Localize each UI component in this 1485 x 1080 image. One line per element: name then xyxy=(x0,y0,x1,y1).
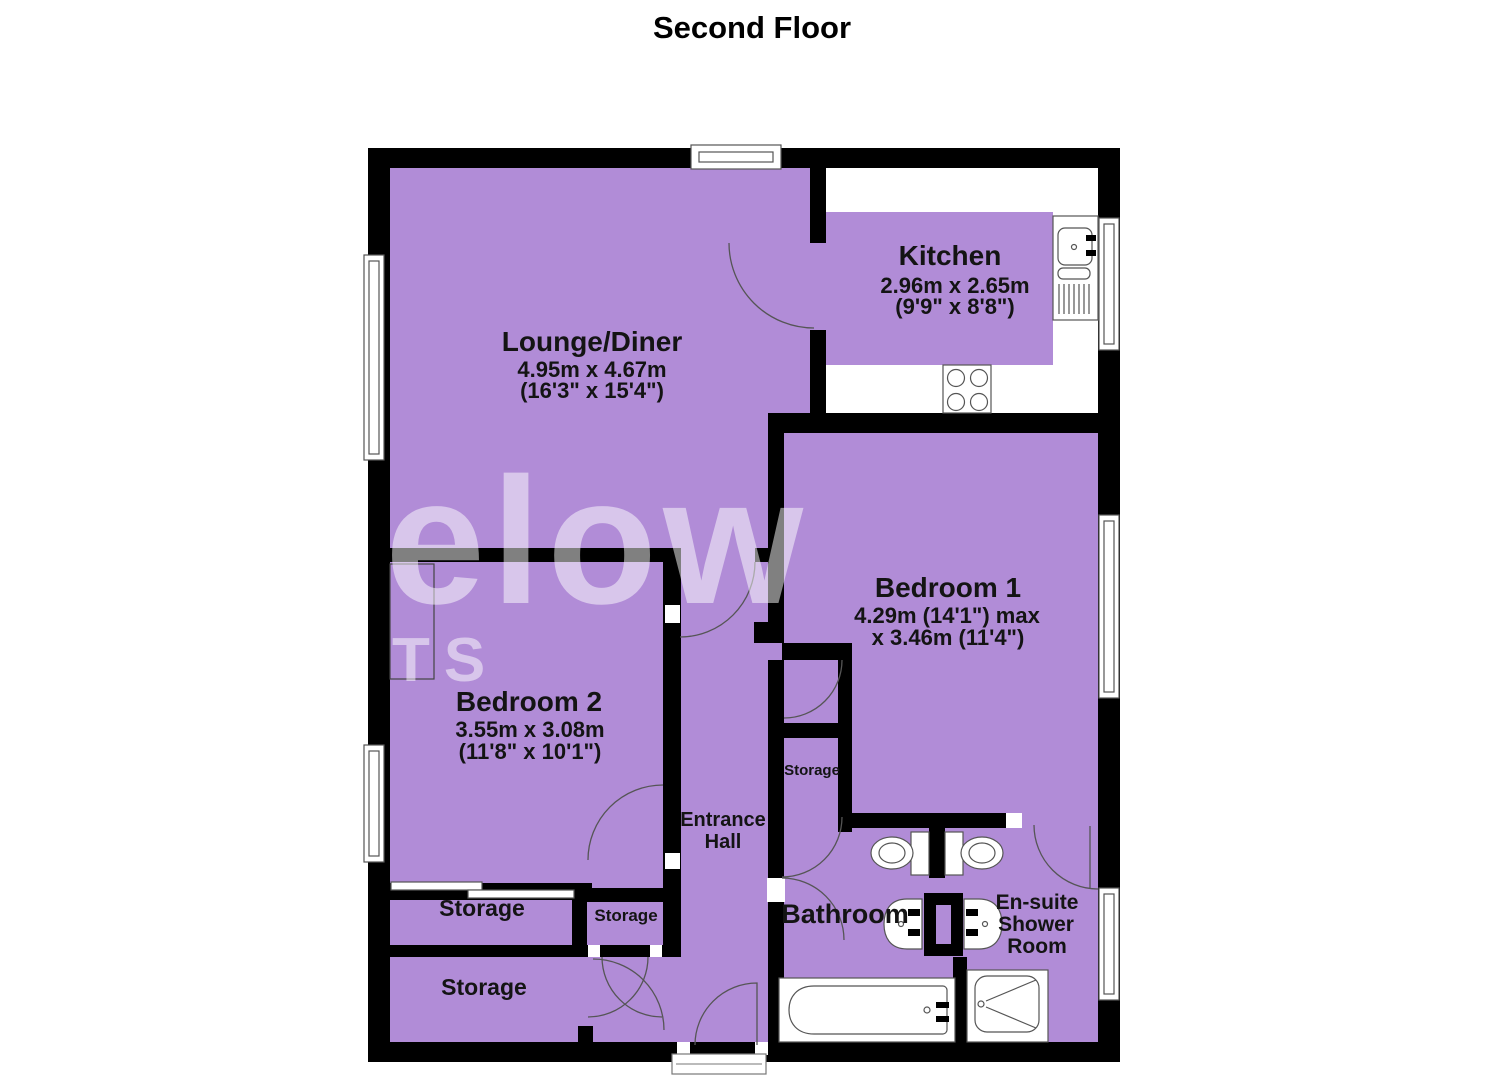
window-ensuite-right xyxy=(1099,888,1119,1000)
storage-hall-name: Storage xyxy=(784,763,840,778)
wall-storages-bottom-c xyxy=(662,945,681,957)
kitchen-sink-unit xyxy=(1053,216,1098,320)
wall-basin-box-inner xyxy=(936,905,951,944)
window-bedroom2-left xyxy=(364,745,384,862)
storage-small-name: Storage xyxy=(594,907,657,924)
wall-kitchen-bottom xyxy=(768,413,1098,433)
wall-bathroom-top xyxy=(852,813,1006,828)
wall-nub-bedroom1-door xyxy=(754,622,784,643)
lounge-dims-imperial: (16'3" x 15'4") xyxy=(520,380,664,402)
window-bedroom1-right xyxy=(1099,515,1119,698)
wall-toilet-divider xyxy=(929,828,945,878)
wall-bedroom1-lower-left xyxy=(782,643,852,660)
kitchen-hob xyxy=(943,365,991,413)
wall-kitchen-divider-lower xyxy=(810,330,826,413)
shower-tray xyxy=(967,970,1048,1042)
ensuite-name-line1: En-suite xyxy=(996,892,1079,913)
kitchen-name: Kitchen xyxy=(899,242,1002,270)
wall-storage-hall-right xyxy=(838,660,852,832)
window-kitchen-right xyxy=(1099,218,1119,350)
marker-bedroom2-door xyxy=(665,853,680,869)
storage-bottom-name: Storage xyxy=(441,976,527,999)
wall-storages-bottom-a xyxy=(368,945,588,957)
wall-kitchen-divider-upper xyxy=(810,168,826,243)
bedroom2-sliding-door-1 xyxy=(391,882,482,890)
lounge-name: Lounge/Diner xyxy=(502,328,682,356)
storage-mid-name: Storage xyxy=(439,897,525,920)
ensuite-name-line3: Room xyxy=(1007,936,1067,957)
bathroom-name: Bathroom xyxy=(781,901,909,928)
marker-storage-small-left xyxy=(588,945,600,957)
window-lounge-left xyxy=(364,255,384,460)
bedroom2-dims-imperial: (11'8" x 10'1") xyxy=(459,741,602,763)
marker-ensuite-door xyxy=(1006,813,1022,828)
wall-lounge-bottom xyxy=(385,548,681,562)
marker-hall-left-upper xyxy=(665,605,680,623)
wall-lounge-stub xyxy=(755,548,769,562)
ensuite-name-line2: Shower xyxy=(998,914,1074,935)
floorplan-page: elow TS Second Floor Lounge/Diner 4.95m … xyxy=(0,0,1485,1080)
window-top xyxy=(691,145,781,169)
hall-name-line2: Hall xyxy=(705,832,742,852)
wall-storage-small-top xyxy=(587,888,681,902)
wall-lounge-bedroom1 xyxy=(768,433,784,643)
entrance-door-slab xyxy=(672,1054,766,1074)
bedroom1-name: Bedroom 1 xyxy=(875,574,1021,602)
bedroom1-dims-2: x 3.46m (11'4") xyxy=(872,627,1025,649)
floorplan-drawing xyxy=(0,0,1485,1080)
kitchen-dims-imperial: (9'9" x 8'8") xyxy=(895,296,1014,318)
hall-name-line1: Entrance xyxy=(680,810,766,830)
bedroom1-dims-1: 4.29m (14'1") max xyxy=(854,605,1040,627)
bedroom2-dims-metric: 3.55m x 3.08m xyxy=(455,719,604,741)
page-title: Second Floor xyxy=(653,10,851,46)
bedroom2-name: Bedroom 2 xyxy=(456,688,602,716)
wall-storage-bottom-stub xyxy=(578,1026,593,1042)
bathtub xyxy=(779,978,955,1042)
marker-entrance-left xyxy=(677,1042,690,1055)
marker-storage-small-right xyxy=(650,945,662,957)
wall-storages-bottom-b xyxy=(600,945,650,957)
